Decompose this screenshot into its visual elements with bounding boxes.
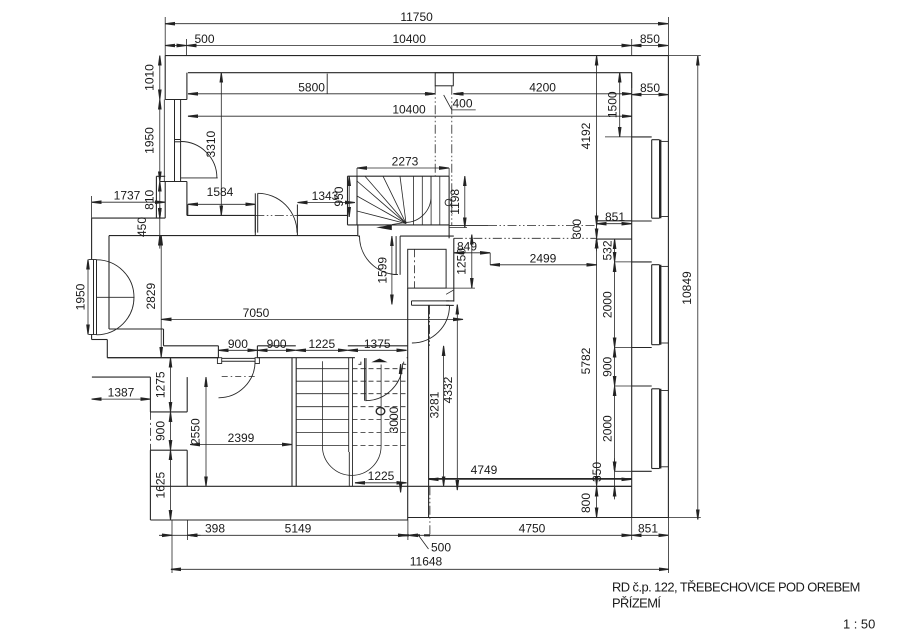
svg-text:500: 500 bbox=[194, 32, 214, 46]
svg-text:RD č.p. 122, TŘEBECHOVICE POD: RD č.p. 122, TŘEBECHOVICE POD OREBEM bbox=[612, 580, 860, 595]
svg-text:2000: 2000 bbox=[601, 415, 615, 442]
svg-text:3281: 3281 bbox=[428, 391, 442, 418]
svg-text:1599: 1599 bbox=[376, 257, 390, 284]
svg-text:1225: 1225 bbox=[308, 337, 335, 351]
svg-text:900: 900 bbox=[228, 337, 248, 351]
svg-text:500: 500 bbox=[431, 541, 451, 555]
svg-text:2399: 2399 bbox=[228, 431, 255, 445]
svg-text:10400: 10400 bbox=[393, 32, 427, 46]
svg-text:PŘÍZEMÍ: PŘÍZEMÍ bbox=[612, 596, 661, 611]
svg-text:1625: 1625 bbox=[154, 471, 168, 498]
svg-text:1250: 1250 bbox=[455, 248, 469, 275]
svg-text:1275: 1275 bbox=[154, 371, 168, 398]
svg-text:450: 450 bbox=[135, 217, 149, 237]
svg-text:2829: 2829 bbox=[144, 283, 158, 310]
svg-text:3000: 3000 bbox=[387, 406, 401, 433]
svg-text:2499: 2499 bbox=[530, 251, 557, 265]
svg-text:10400: 10400 bbox=[392, 103, 426, 117]
svg-text:10849: 10849 bbox=[680, 271, 694, 305]
svg-text:11648: 11648 bbox=[410, 555, 443, 569]
svg-text:900: 900 bbox=[154, 421, 168, 441]
svg-text:1375: 1375 bbox=[364, 337, 391, 351]
svg-text:2000: 2000 bbox=[601, 291, 615, 318]
svg-text:900: 900 bbox=[267, 337, 287, 351]
svg-text:11750: 11750 bbox=[400, 10, 433, 24]
svg-text:1225: 1225 bbox=[368, 469, 395, 483]
svg-text:4332: 4332 bbox=[441, 376, 455, 403]
svg-text:851: 851 bbox=[638, 522, 658, 536]
svg-text:400: 400 bbox=[452, 97, 472, 111]
svg-text:1950: 1950 bbox=[74, 283, 88, 310]
svg-text:4192: 4192 bbox=[579, 122, 593, 149]
svg-text:2273: 2273 bbox=[392, 155, 419, 169]
svg-text:1 : 50: 1 : 50 bbox=[843, 617, 875, 632]
svg-text:850: 850 bbox=[640, 81, 660, 95]
svg-text:4750: 4750 bbox=[519, 522, 546, 536]
svg-text:4200: 4200 bbox=[529, 80, 556, 94]
svg-text:1198: 1198 bbox=[448, 189, 462, 215]
svg-text:1737: 1737 bbox=[114, 189, 141, 203]
svg-text:1010: 1010 bbox=[143, 64, 157, 91]
svg-text:4749: 4749 bbox=[471, 463, 498, 477]
svg-text:5782: 5782 bbox=[579, 347, 593, 374]
svg-text:398: 398 bbox=[205, 522, 225, 536]
svg-text:851: 851 bbox=[605, 210, 625, 224]
svg-text:5800: 5800 bbox=[298, 80, 325, 94]
svg-text:300: 300 bbox=[570, 219, 584, 239]
svg-text:810: 810 bbox=[143, 189, 157, 209]
svg-text:2550: 2550 bbox=[189, 418, 203, 445]
svg-text:850: 850 bbox=[640, 32, 660, 46]
svg-text:1387: 1387 bbox=[108, 386, 135, 400]
svg-text:900: 900 bbox=[601, 356, 615, 376]
svg-text:1584: 1584 bbox=[207, 185, 234, 199]
svg-text:1950: 1950 bbox=[143, 127, 157, 154]
svg-text:800: 800 bbox=[579, 493, 593, 513]
svg-text:1500: 1500 bbox=[606, 91, 620, 118]
svg-text:7050: 7050 bbox=[243, 306, 270, 320]
svg-text:3310: 3310 bbox=[204, 130, 218, 157]
svg-text:950: 950 bbox=[332, 186, 346, 206]
svg-text:5149: 5149 bbox=[285, 522, 312, 536]
svg-text:532: 532 bbox=[601, 240, 615, 260]
